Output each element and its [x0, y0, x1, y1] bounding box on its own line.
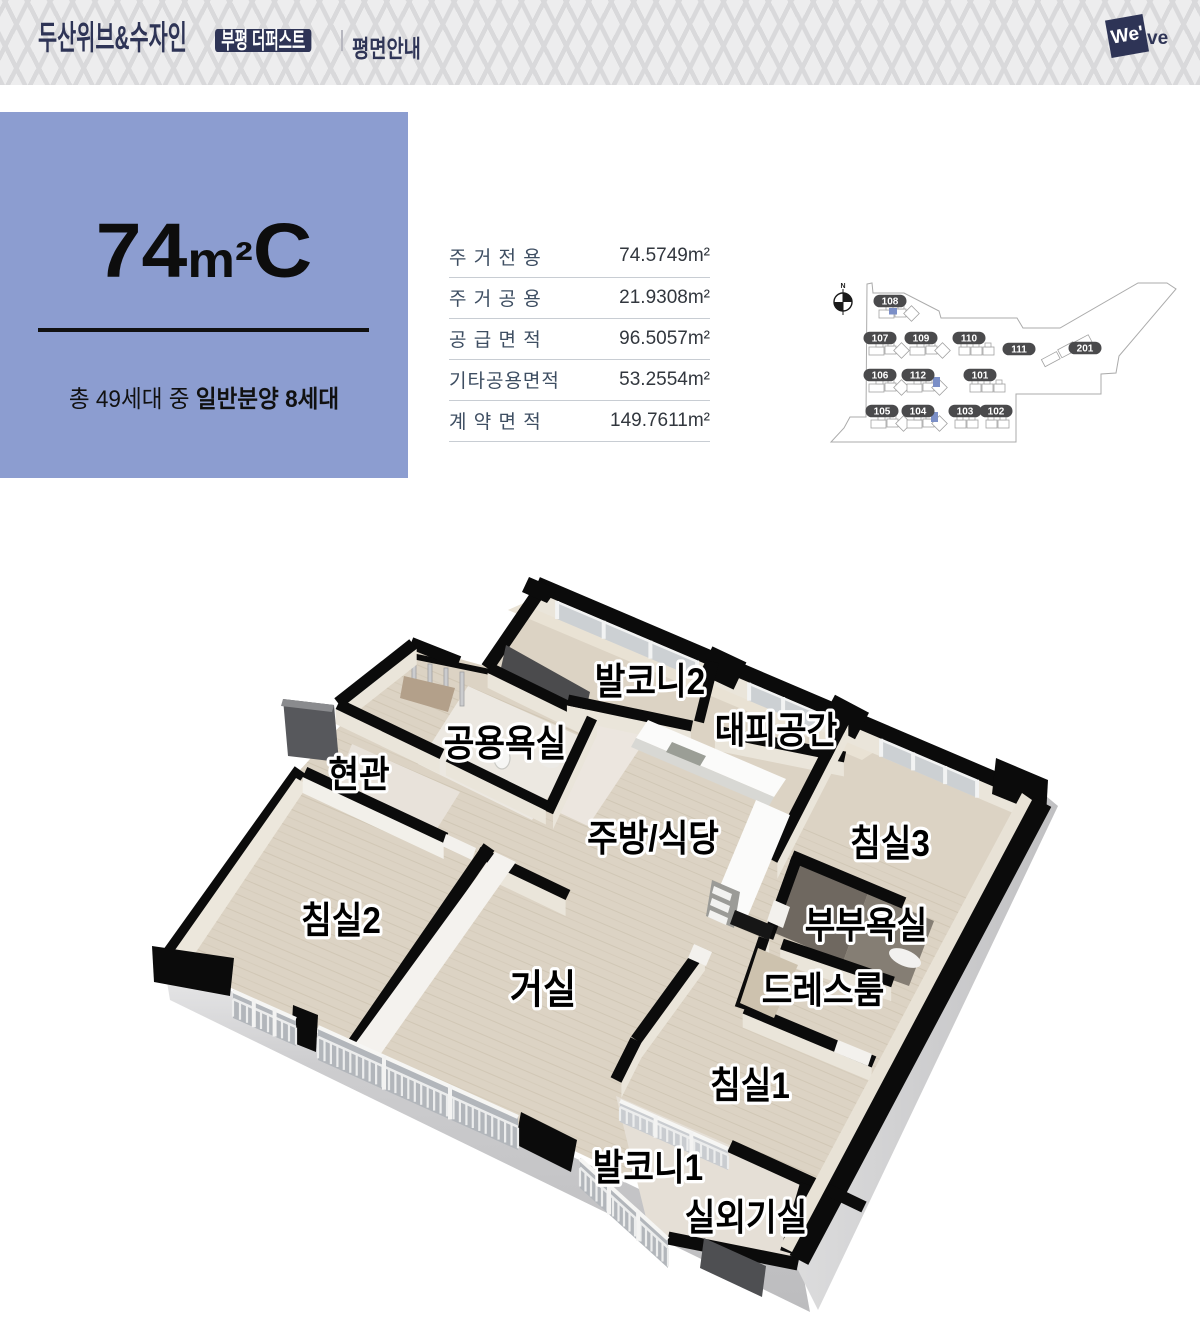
svg-text:대피공간: 대피공간 — [715, 710, 838, 751]
svg-text:실외기실: 실외기실 — [685, 1197, 808, 1238]
svg-text:111: 111 — [1011, 345, 1027, 356]
svg-text:거실: 거실 — [510, 968, 576, 1012]
svg-text:102: 102 — [988, 407, 1005, 418]
svg-text:발코니1: 발코니1 — [593, 1147, 703, 1188]
svg-text:침실3: 침실3 — [850, 823, 930, 864]
svg-text:101: 101 — [972, 371, 989, 382]
svg-text:106: 106 — [872, 371, 889, 382]
svg-text:현관: 현관 — [328, 754, 389, 795]
svg-text:104: 104 — [910, 407, 927, 418]
svg-text:105: 105 — [874, 407, 891, 418]
svg-text:공용욕실: 공용욕실 — [444, 723, 567, 764]
svg-text:침실1: 침실1 — [710, 1065, 790, 1106]
svg-text:발코니2: 발코니2 — [595, 661, 705, 702]
svg-text:109: 109 — [913, 334, 930, 345]
svg-text:201: 201 — [1077, 344, 1094, 355]
svg-text:103: 103 — [957, 407, 974, 418]
svg-text:108: 108 — [882, 297, 899, 308]
svg-text:드레스룸: 드레스룸 — [762, 970, 885, 1011]
svg-text:주방/식당: 주방/식당 — [587, 818, 719, 859]
svg-text:침실2: 침실2 — [301, 900, 381, 941]
svg-text:112: 112 — [910, 371, 927, 382]
svg-text:부부욕실: 부부욕실 — [805, 905, 928, 946]
svg-text:107: 107 — [872, 334, 889, 345]
svg-text:N: N — [840, 283, 845, 290]
svg-text:110: 110 — [961, 334, 978, 345]
